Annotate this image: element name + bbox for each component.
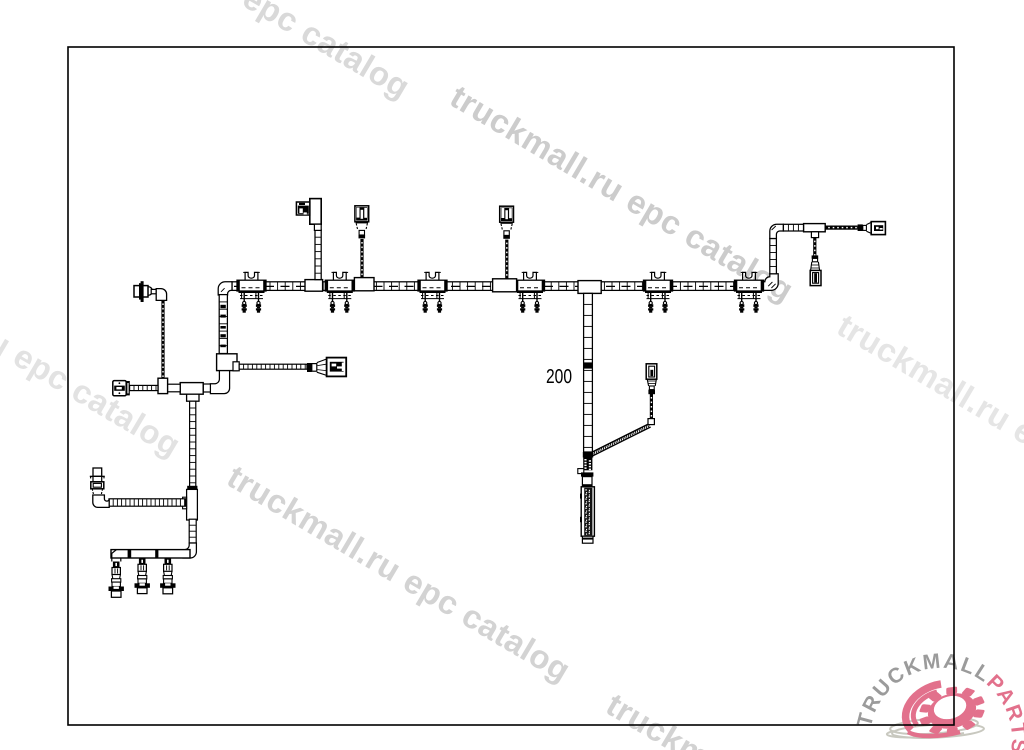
svg-text:200: 200 [546, 366, 572, 388]
